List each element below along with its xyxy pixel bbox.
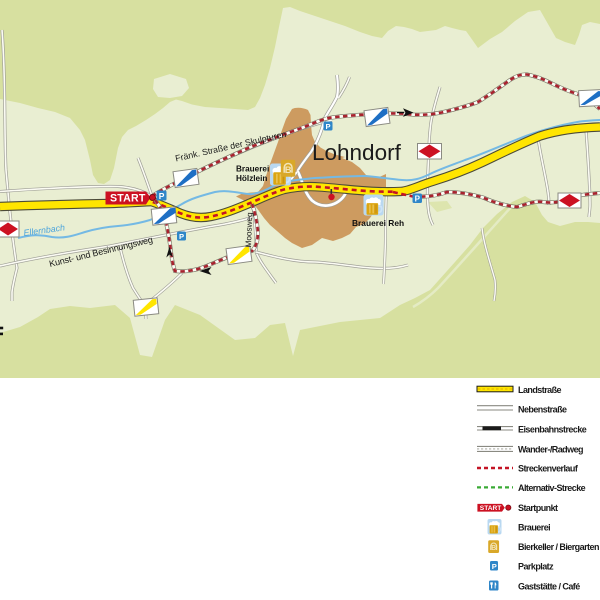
svg-text:Brauerei: Brauerei (236, 165, 269, 174)
svg-text:Lohndorf: Lohndorf (312, 140, 402, 165)
svg-text:P: P (179, 232, 184, 241)
svg-text:Moosweg: Moosweg (244, 212, 254, 248)
svg-text:Streckenverlauf: Streckenverlauf (518, 464, 579, 474)
svg-text:Eisenbahnstrecke: Eisenbahnstrecke (518, 425, 587, 435)
svg-text:Wander-/Radweg: Wander-/Radweg (518, 445, 583, 455)
svg-text:Brauerei Reh: Brauerei Reh (352, 218, 404, 228)
svg-text:Startpunkt: Startpunkt (518, 503, 558, 513)
svg-text:P: P (326, 122, 331, 131)
svg-text:P: P (159, 191, 165, 201)
svg-text:Bierkeller / Biergarten: Bierkeller / Biergarten (518, 542, 599, 552)
svg-text:P: P (415, 194, 421, 203)
svg-text:Hölzlein: Hölzlein (236, 174, 267, 183)
svg-text:Landstraße: Landstraße (518, 385, 562, 395)
svg-text:START: START (480, 505, 502, 512)
svg-text:P: P (492, 562, 497, 571)
svg-text:Nebenstraße: Nebenstraße (518, 405, 567, 415)
svg-text:Brauerei: Brauerei (518, 523, 550, 533)
svg-text:Parkplatz: Parkplatz (518, 562, 554, 572)
svg-text:Alternativ-Strecke: Alternativ-Strecke (518, 483, 586, 493)
svg-text:START: START (110, 193, 146, 205)
svg-text:Gaststätte / Café: Gaststätte / Café (518, 582, 580, 592)
